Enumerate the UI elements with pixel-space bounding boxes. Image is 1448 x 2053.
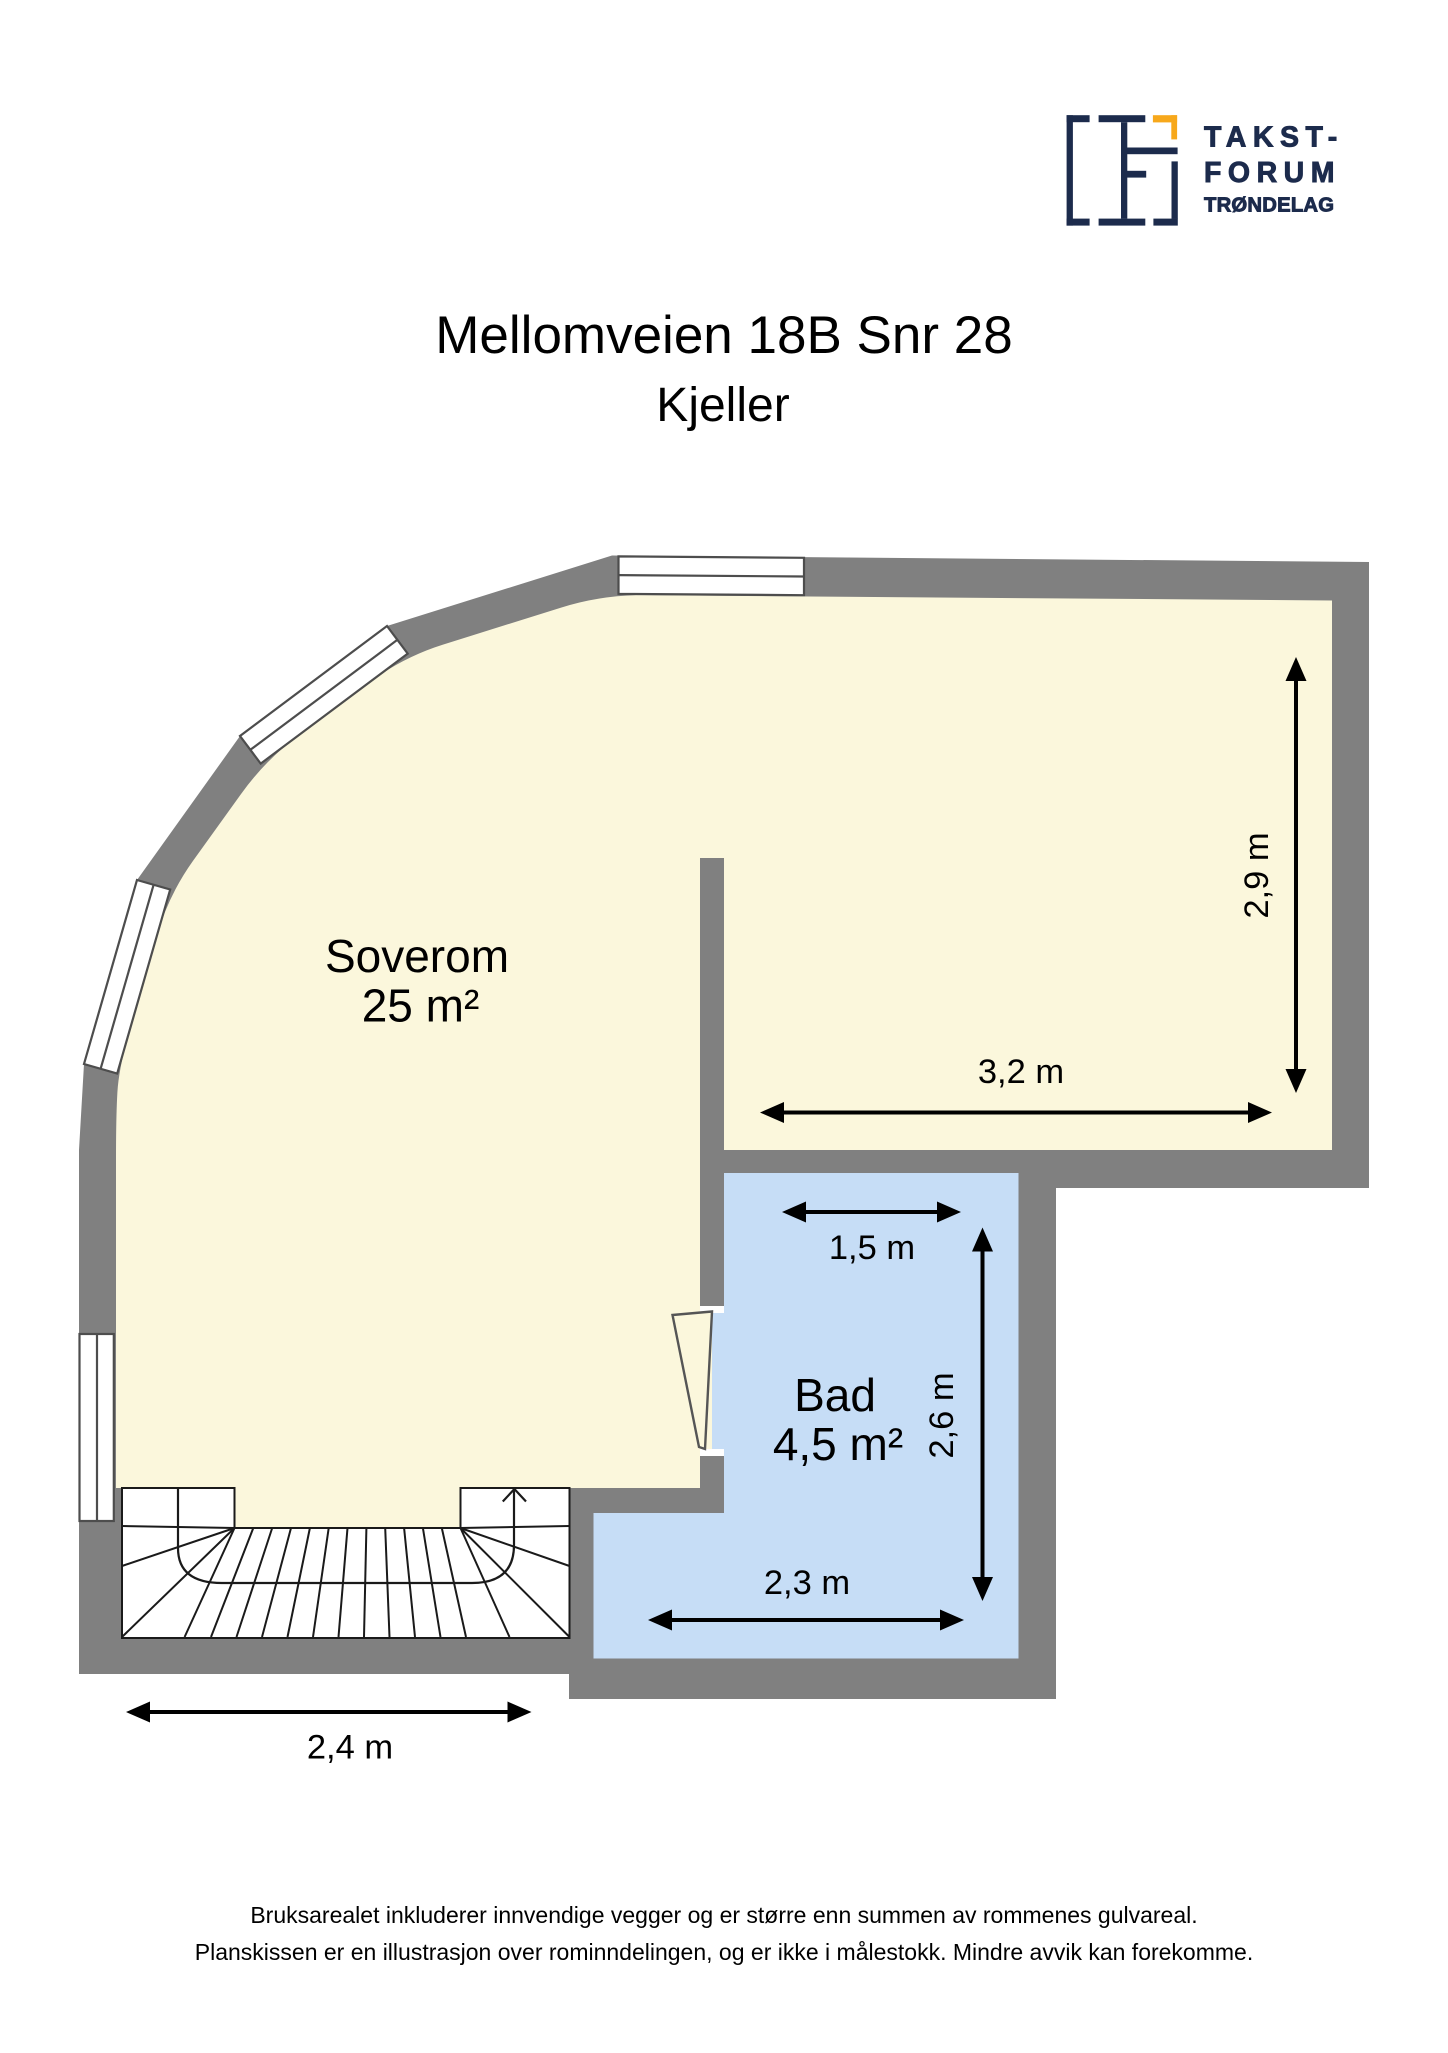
- svg-text:3,2 m: 3,2 m: [978, 1053, 1064, 1091]
- svg-text:TRØNDELAG: TRØNDELAG: [1204, 195, 1334, 217]
- svg-text:Kjeller: Kjeller: [656, 379, 789, 432]
- svg-text:Bruksarealet inkluderer innven: Bruksarealet inkluderer innvendige vegge…: [250, 1902, 1197, 1928]
- svg-text:Bad: Bad: [794, 1369, 876, 1421]
- svg-text:1,5 m: 1,5 m: [829, 1229, 915, 1267]
- svg-text:4,5 m²: 4,5 m²: [773, 1418, 903, 1470]
- svg-text:2,9 m: 2,9 m: [1238, 832, 1276, 918]
- svg-text:TAKST-: TAKST-: [1204, 122, 1344, 154]
- svg-text:2,4 m: 2,4 m: [307, 1729, 393, 1767]
- svg-text:Planskissen er en illustrasjon: Planskissen er en illustrasjon over romi…: [195, 1939, 1253, 1965]
- svg-text:Mellomveien 18B Snr 28: Mellomveien 18B Snr 28: [435, 306, 1012, 365]
- svg-text:Soverom: Soverom: [325, 930, 509, 982]
- svg-text:FORUM: FORUM: [1204, 157, 1341, 189]
- svg-text:25 m²: 25 m²: [362, 980, 480, 1032]
- svg-text:2,6 m: 2,6 m: [923, 1372, 961, 1458]
- svg-text:2,3 m: 2,3 m: [764, 1564, 850, 1602]
